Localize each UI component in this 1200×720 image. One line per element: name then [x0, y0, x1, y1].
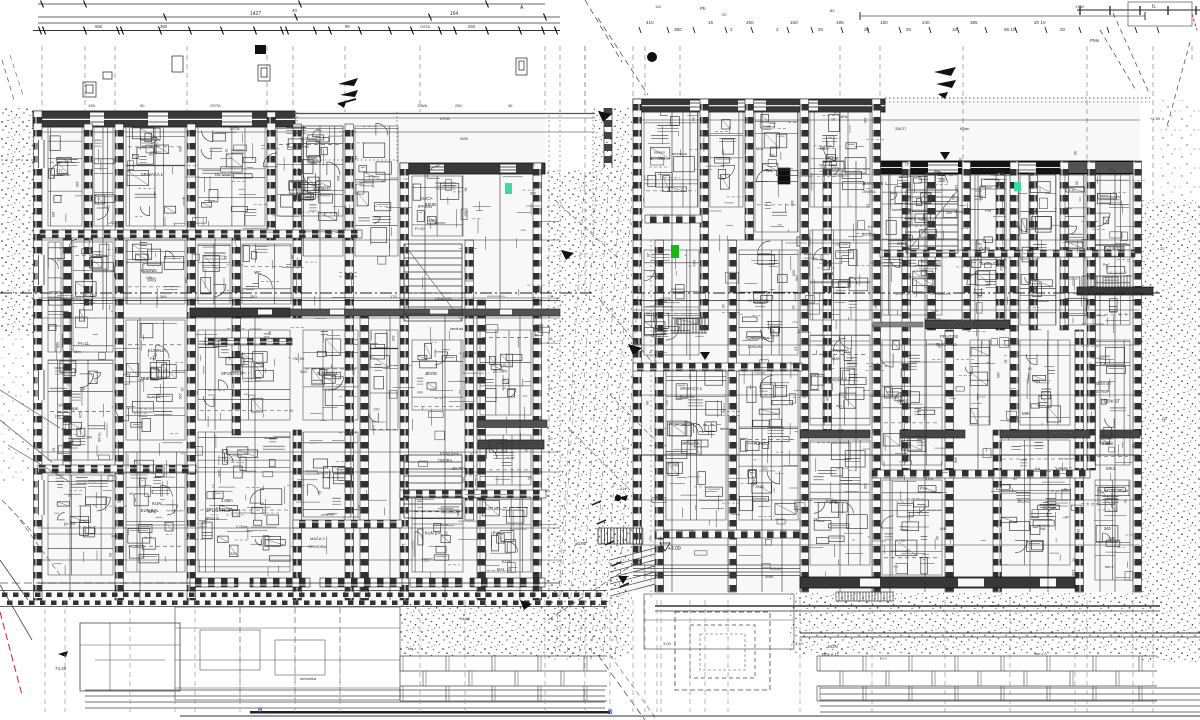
- svg-text:KOJ 65: KOJ 65: [485, 506, 499, 511]
- svg-text:160: 160: [935, 261, 939, 267]
- svg-text:120: 120: [190, 441, 196, 445]
- svg-text:ker.c 0: ker.c 0: [1035, 651, 1048, 656]
- svg-text:300: 300: [790, 200, 794, 206]
- svg-text:195: 195: [51, 211, 55, 217]
- svg-text:PRATOS: PRATOS: [940, 334, 958, 339]
- svg-text:240: 240: [795, 275, 799, 281]
- svg-text:90: 90: [149, 153, 153, 157]
- svg-text:15: 15: [937, 344, 941, 348]
- svg-text:200: 200: [692, 260, 696, 266]
- svg-text:98: 98: [548, 336, 553, 341]
- svg-text:DNEVNI: DNEVNI: [141, 376, 157, 381]
- svg-text:P=?: P=?: [880, 656, 888, 661]
- svg-text:9.33m: 9.33m: [1102, 441, 1114, 446]
- svg-text:665: 665: [95, 24, 103, 29]
- svg-text:65 10: 65 10: [1004, 27, 1016, 32]
- svg-text:OSTA: OSTA: [210, 103, 221, 108]
- svg-text:KON: KON: [502, 559, 512, 564]
- svg-text:60: 60: [1063, 488, 1067, 492]
- svg-text:JONIK: JONIK: [825, 499, 838, 504]
- svg-text:37m: 37m: [925, 476, 933, 481]
- svg-text:160: 160: [1088, 362, 1092, 368]
- svg-text:ON0RA: ON0RA: [862, 189, 876, 194]
- svg-text:410: 410: [646, 20, 654, 25]
- svg-text:K F: K F: [350, 156, 358, 162]
- svg-text:40: 40: [292, 8, 298, 13]
- svg-text:195: 195: [836, 20, 844, 25]
- svg-text:2.00m: 2.00m: [236, 524, 248, 529]
- svg-text:160: 160: [769, 154, 775, 158]
- svg-text:amm: amm: [990, 603, 1000, 608]
- svg-text:IL: IL: [1152, 4, 1156, 10]
- svg-text:240: 240: [147, 278, 153, 282]
- svg-text:240: 240: [111, 535, 117, 539]
- svg-text:330: 330: [939, 178, 945, 182]
- svg-text:90: 90: [1073, 151, 1077, 155]
- svg-text:20: 20: [748, 299, 752, 303]
- svg-text:ON0RA: ON0RA: [438, 458, 453, 463]
- svg-text:+30.96: +30.96: [155, 368, 168, 373]
- svg-text:60: 60: [291, 255, 295, 259]
- svg-text:?URGO?ICA: ?URGO?ICA: [745, 336, 769, 341]
- svg-text:330: 330: [951, 194, 955, 200]
- svg-text:250: 250: [250, 294, 257, 299]
- svg-text:ŠPU SЈHС: ŠPU SЈHС: [908, 216, 928, 221]
- svg-text:10: 10: [793, 347, 797, 351]
- svg-text:min: min: [417, 391, 423, 395]
- svg-text:kamen: kamen: [652, 334, 663, 338]
- svg-text:300: 300: [58, 404, 64, 408]
- svg-text:K3: K3: [1100, 361, 1106, 366]
- svg-text:15: 15: [1131, 444, 1135, 448]
- svg-text:DWA 195: DWA 195: [435, 296, 453, 301]
- svg-text:3.12: 3.12: [1068, 188, 1075, 192]
- svg-text:K3: K3: [838, 428, 844, 433]
- svg-text:3.12: 3.12: [978, 394, 985, 398]
- svg-text:150: 150: [880, 20, 888, 25]
- svg-text:160: 160: [75, 181, 79, 187]
- svg-text:WC: WC: [766, 168, 773, 173]
- svg-text:164: 164: [450, 11, 459, 17]
- svg-text:50: 50: [548, 436, 553, 441]
- svg-text:40: 40: [905, 550, 909, 554]
- svg-text:90: 90: [645, 401, 649, 405]
- svg-text:VAĆA 2: VAĆA 2: [317, 471, 332, 476]
- svg-text:WR: WR: [940, 526, 947, 531]
- svg-text:60: 60: [223, 256, 227, 260]
- svg-text:95: 95: [548, 386, 553, 391]
- svg-text:ammљa: ammљa: [672, 151, 688, 156]
- svg-text:41: 41: [620, 486, 625, 491]
- svg-text:SPAVAĆA 1: SPAVAĆA 1: [60, 296, 82, 301]
- svg-text:SPAVAĆA: SPAVAĆA: [681, 441, 700, 446]
- svg-text:10: 10: [52, 447, 56, 451]
- svg-text:300: 300: [461, 352, 465, 358]
- svg-text:300: 300: [792, 270, 796, 276]
- svg-text:20: 20: [864, 27, 870, 32]
- svg-text:300: 300: [217, 470, 222, 477]
- svg-text:70: 70: [224, 148, 228, 152]
- svg-text:min: min: [926, 186, 932, 190]
- svg-text:20.70m: 20.70m: [452, 466, 466, 471]
- svg-text:2: 2: [730, 27, 733, 32]
- svg-text:250: 250: [468, 24, 476, 29]
- svg-text:SPAS: SPAS: [897, 399, 908, 404]
- svg-text:Pr=11.: Pr=11.: [78, 341, 90, 346]
- svg-text:160: 160: [336, 175, 340, 181]
- svg-text:1427: 1427: [250, 11, 261, 17]
- svg-text:90: 90: [268, 331, 272, 335]
- svg-text:60: 60: [534, 334, 538, 338]
- svg-text:BAL 11: BAL 11: [497, 567, 512, 572]
- svg-text:3.00: 3.00: [663, 641, 672, 646]
- svg-text:SPAVAĆA 1: SPAVAĆA 1: [141, 172, 164, 177]
- svg-text:PMn: PMn: [1090, 38, 1100, 43]
- svg-text:MIN: MIN: [840, 114, 847, 119]
- svg-text:HODNIK: HODNIK: [300, 136, 316, 141]
- svg-text:7.40: 7.40: [795, 641, 804, 646]
- svg-text:220: 220: [374, 408, 380, 412]
- svg-text:90: 90: [68, 494, 72, 498]
- svg-text:IPA0Љ: IPA0Љ: [418, 204, 432, 209]
- svg-text:KUĆA: KUĆA: [420, 195, 433, 201]
- svg-text:laminat: laminat: [64, 406, 78, 411]
- svg-text:ermin: ermin: [897, 241, 908, 246]
- svg-text:160: 160: [790, 20, 798, 25]
- svg-text:EVNI BAK I: EVNI BAK I: [440, 451, 462, 456]
- svg-text:330: 330: [391, 335, 395, 341]
- svg-text:P=2 9.33m: P=2 9.33m: [1104, 246, 1125, 251]
- svg-text:36: 36: [508, 103, 513, 108]
- svg-text:90: 90: [463, 187, 467, 191]
- svg-text:90: 90: [140, 103, 145, 108]
- svg-text:45: 45: [1168, 306, 1173, 311]
- svg-text:0STA: 0STA: [440, 116, 450, 121]
- svg-text:SPUŠTROP: SPUŠTROP: [221, 371, 244, 376]
- svg-text:200: 200: [351, 369, 355, 375]
- svg-text:BVAUNI: BVAUNI: [680, 394, 695, 399]
- svg-text:45: 45: [1072, 558, 1076, 562]
- svg-text:60: 60: [935, 536, 939, 540]
- svg-text:SPUŠTROP: SPUŠTROP: [205, 507, 233, 514]
- svg-text:PUSTR0P: PUSTR0P: [1090, 389, 1110, 394]
- svg-text:+1.50: +1.50: [1150, 116, 1161, 121]
- svg-text:Pb: Pb: [700, 6, 706, 11]
- svg-text:250: 250: [455, 103, 462, 108]
- svg-text:MIN: MIN: [756, 146, 763, 151]
- svg-text:KON: KON: [828, 644, 838, 649]
- svg-text:B: B: [608, 710, 613, 716]
- svg-text:90: 90: [113, 390, 117, 394]
- svg-text:14.60: 14.60: [460, 616, 471, 621]
- svg-text:15: 15: [502, 363, 506, 367]
- svg-text:90: 90: [1075, 181, 1079, 185]
- svg-text:160: 160: [1076, 529, 1080, 535]
- svg-text:laminat: laminat: [720, 426, 734, 431]
- svg-text:p= 40: p= 40: [64, 521, 75, 526]
- svg-text:ker.pl: ker.pl: [85, 263, 94, 267]
- svg-text:lamino: lamino: [57, 172, 70, 177]
- svg-text:40m: 40m: [428, 218, 437, 223]
- svg-text:Pr=11: Pr=11: [83, 293, 95, 298]
- svg-text:190: 190: [469, 452, 474, 459]
- svg-text:60: 60: [263, 512, 267, 516]
- svg-text:20: 20: [289, 409, 293, 413]
- svg-text:keramika: keramika: [300, 676, 317, 681]
- svg-text:25: 25: [152, 278, 156, 282]
- svg-text:WC: WC: [254, 270, 261, 275]
- svg-text:DNEVNI: DNEVNI: [754, 299, 770, 304]
- svg-text:SPAVAĆA 1: SPAVAĆA 1: [680, 386, 703, 391]
- svg-text:IWN: IWN: [460, 136, 468, 141]
- svg-text:45: 45: [180, 387, 184, 391]
- svg-text:360: 360: [160, 294, 167, 299]
- svg-text:112: 112: [655, 4, 662, 9]
- svg-text:60: 60: [871, 429, 875, 433]
- svg-text:15: 15: [901, 539, 905, 543]
- svg-text:BVAUNI: BVAUNI: [748, 344, 763, 349]
- svg-text:330: 330: [530, 191, 536, 195]
- svg-text:20.70m: 20.70m: [493, 369, 507, 374]
- svg-text:15: 15: [185, 533, 189, 537]
- svg-text:20: 20: [153, 353, 157, 357]
- svg-text:120: 120: [794, 506, 798, 512]
- svg-text:160: 160: [954, 185, 958, 191]
- svg-text:160: 160: [863, 117, 867, 123]
- svg-text:90: 90: [345, 24, 350, 29]
- svg-text:220: 220: [423, 559, 429, 563]
- svg-text:160: 160: [349, 470, 354, 477]
- svg-text:200: 200: [524, 446, 528, 452]
- svg-text:/KA UHINJ: /KA UHINJ: [317, 371, 337, 376]
- svg-text:-0.02: -0.02: [755, 484, 765, 489]
- svg-text:20: 20: [318, 491, 322, 495]
- svg-text:10: 10: [1003, 359, 1007, 363]
- svg-text:40: 40: [129, 492, 133, 496]
- svg-text:76.90: 76.90: [97, 432, 102, 443]
- svg-text:25: 25: [117, 500, 121, 504]
- svg-text:200: 200: [999, 265, 1003, 271]
- svg-text:60: 60: [108, 553, 112, 557]
- svg-text:20: 20: [722, 12, 727, 17]
- svg-text:2.00m: 2.00m: [221, 498, 233, 503]
- svg-text:160: 160: [178, 146, 182, 152]
- svg-text:KUHINJA: KUHINJA: [313, 187, 331, 192]
- svg-text:20: 20: [818, 27, 824, 32]
- svg-text:60: 60: [294, 131, 298, 135]
- svg-text:Д1: Д1: [1162, 416, 1168, 421]
- svg-text:120: 120: [801, 376, 805, 382]
- svg-text:45: 45: [343, 205, 347, 209]
- svg-text:150: 150: [184, 277, 188, 283]
- svg-text:0STA: 0STA: [230, 126, 240, 131]
- svg-text:385: 385: [970, 20, 978, 25]
- svg-text:45: 45: [61, 427, 65, 431]
- svg-text:BAL: BAL: [148, 509, 157, 514]
- svg-text:JENI S: JENI S: [205, 516, 219, 521]
- svg-text:laminat: laminat: [450, 326, 464, 331]
- svg-text:?URGO: ?URGO: [754, 441, 770, 446]
- svg-text:NA: NA: [1040, 526, 1046, 531]
- svg-text:ker.pl: ker.pl: [322, 388, 331, 392]
- svg-text:70: 70: [648, 536, 652, 540]
- svg-text:Pm²: Pm²: [499, 508, 506, 512]
- svg-text:KUN BAL 11: KUN BAL 11: [425, 531, 449, 536]
- svg-text:OSTA: OSTA: [660, 296, 671, 301]
- svg-text:MIN: MIN: [1022, 411, 1030, 416]
- svg-text:min: min: [1098, 490, 1104, 494]
- svg-text:160: 160: [996, 372, 1000, 378]
- svg-text:B: B: [258, 708, 263, 714]
- svg-text:10: 10: [952, 27, 958, 32]
- svg-text:kamen: kamen: [654, 151, 665, 155]
- svg-text:330: 330: [863, 483, 867, 489]
- svg-text:90: 90: [791, 305, 795, 309]
- svg-text:60: 60: [545, 488, 550, 493]
- svg-text:K2: K2: [868, 224, 874, 229]
- svg-text:195: 195: [88, 103, 95, 108]
- svg-text:240: 240: [311, 161, 317, 165]
- svg-text:200: 200: [178, 394, 182, 400]
- svg-text:240: 240: [922, 20, 930, 25]
- svg-text:170: 170: [390, 294, 397, 299]
- svg-text:kamen: kamen: [1028, 278, 1039, 282]
- svg-text:120: 120: [78, 412, 82, 418]
- svg-text:P=10: P=10: [415, 226, 425, 231]
- svg-text:BILAC: BILAC: [1018, 499, 1030, 504]
- svg-text:ker r: ker r: [408, 646, 417, 651]
- svg-text:kamen: kamen: [52, 291, 63, 295]
- svg-text:0NIK: 0NIK: [765, 574, 774, 579]
- svg-text:K.F: K.F: [294, 167, 301, 172]
- svg-text:Pm: Pm: [150, 356, 157, 361]
- svg-text:20: 20: [646, 253, 650, 257]
- svg-text:Mm: Mm: [74, 349, 81, 354]
- svg-text:60: 60: [691, 117, 695, 121]
- svg-text:15: 15: [56, 257, 60, 261]
- svg-text:Pm: Pm: [985, 208, 992, 213]
- svg-text:90: 90: [956, 197, 960, 201]
- svg-text:KA: KA: [1035, 466, 1041, 471]
- svg-text:340: 340: [1108, 536, 1116, 541]
- svg-text:45: 45: [797, 329, 801, 333]
- svg-text:360: 360: [674, 27, 682, 32]
- svg-text:20: 20: [1060, 27, 1066, 32]
- svg-text:ISTEMP: ISTEMP: [912, 208, 927, 213]
- svg-text:196: 196: [302, 144, 309, 149]
- svg-text:SPAVAĆA 2: SPAVAĆA 2: [830, 348, 853, 353]
- svg-text:min: min: [836, 404, 842, 408]
- svg-text:=6.66: =6.66: [953, 209, 964, 214]
- svg-text:150: 150: [1137, 508, 1143, 512]
- svg-text:SPAS0RA: SPAS0RA: [308, 544, 326, 549]
- svg-text:150: 150: [529, 163, 535, 167]
- svg-text:MIN: MIN: [1033, 379, 1041, 384]
- svg-text:JONIK: JONIK: [770, 566, 782, 571]
- svg-text:15: 15: [831, 118, 835, 122]
- svg-text:OSTA: OSTA: [420, 25, 431, 29]
- svg-text:BALA 11: BALA 11: [822, 652, 840, 657]
- svg-text:160: 160: [977, 295, 983, 299]
- svg-text:300: 300: [463, 210, 467, 216]
- svg-text:20: 20: [906, 27, 912, 32]
- svg-text:160: 160: [461, 477, 465, 483]
- svg-text:90: 90: [1123, 499, 1127, 503]
- svg-text:80: 80: [830, 8, 835, 13]
- svg-text:120: 120: [56, 342, 60, 348]
- svg-text:KUN: KUN: [152, 501, 162, 506]
- svg-text:OSTAVA: OSTAVA: [215, 172, 231, 177]
- svg-text:20: 20: [825, 397, 829, 401]
- svg-text:120: 120: [104, 205, 110, 209]
- svg-text:15: 15: [1086, 306, 1090, 310]
- svg-text:15: 15: [721, 304, 725, 308]
- svg-text:SENI ST: SENI ST: [1104, 399, 1121, 404]
- svg-text:SENI ST: SENI ST: [1095, 381, 1112, 386]
- svg-text:SPAVAĆA 1: SPAVAĆA 1: [930, 291, 952, 296]
- svg-text:240: 240: [86, 436, 92, 440]
- svg-text:15: 15: [708, 20, 714, 25]
- svg-text:360: 360: [160, 24, 168, 29]
- svg-text:JEVNI: JEVNI: [425, 371, 437, 376]
- svg-text:300: 300: [958, 158, 962, 164]
- svg-text:laminat: laminat: [825, 156, 839, 161]
- svg-text:25: 25: [528, 477, 532, 481]
- svg-text:60: 60: [1028, 367, 1032, 371]
- svg-text:MK1: MK1: [1106, 466, 1116, 471]
- svg-text:360: 360: [300, 369, 307, 374]
- svg-text:240: 240: [55, 415, 61, 419]
- svg-text:±0.00: ±0.00: [575, 541, 587, 546]
- svg-text:15: 15: [835, 243, 839, 247]
- svg-text:Д2: Д2: [80, 386, 86, 391]
- svg-text:340: 340: [1104, 526, 1112, 531]
- svg-text:260: 260: [746, 20, 754, 25]
- svg-text:P=6: P=6: [920, 486, 928, 491]
- svg-text:150: 150: [819, 146, 825, 150]
- svg-text:2: 2: [776, 27, 779, 32]
- svg-text:22: 22: [1160, 246, 1165, 251]
- svg-text:200: 200: [456, 511, 460, 517]
- svg-text:+3.00: +3.00: [668, 546, 681, 552]
- svg-text:15: 15: [866, 204, 870, 208]
- svg-text:330: 330: [954, 457, 958, 463]
- svg-text:kamen: kamen: [892, 208, 903, 212]
- svg-text:300: 300: [873, 303, 877, 309]
- svg-text:MAS: MAS: [832, 356, 841, 361]
- svg-text:JEVNI BAK I: JEVNI BAK I: [862, 181, 886, 186]
- svg-text:ker.c: ker.c: [1105, 564, 1113, 569]
- svg-text:50: 50: [622, 446, 627, 451]
- svg-text:DWA: DWA: [418, 103, 428, 108]
- svg-text:+30.96: +30.96: [292, 356, 305, 361]
- svg-text:240: 240: [293, 184, 299, 188]
- svg-text:K2an: K2an: [960, 126, 969, 131]
- svg-text:P=23: P=23: [1029, 246, 1040, 251]
- svg-text:120: 120: [137, 379, 143, 383]
- svg-text:20 10: 20 10: [1034, 20, 1046, 25]
- svg-text:HODNIK: HODNIK: [141, 268, 157, 273]
- svg-text:90: 90: [1013, 477, 1017, 481]
- svg-text:15: 15: [905, 162, 909, 166]
- svg-text:MK1: MK1: [825, 271, 834, 276]
- svg-text:ЗАСП: ЗАСП: [895, 126, 906, 131]
- svg-text:195: 195: [1071, 570, 1075, 576]
- svg-text:3.12: 3.12: [56, 169, 63, 173]
- svg-text:15: 15: [149, 489, 153, 493]
- svg-text:MAČA 2: MAČA 2: [310, 536, 325, 541]
- svg-text:240: 240: [946, 211, 952, 215]
